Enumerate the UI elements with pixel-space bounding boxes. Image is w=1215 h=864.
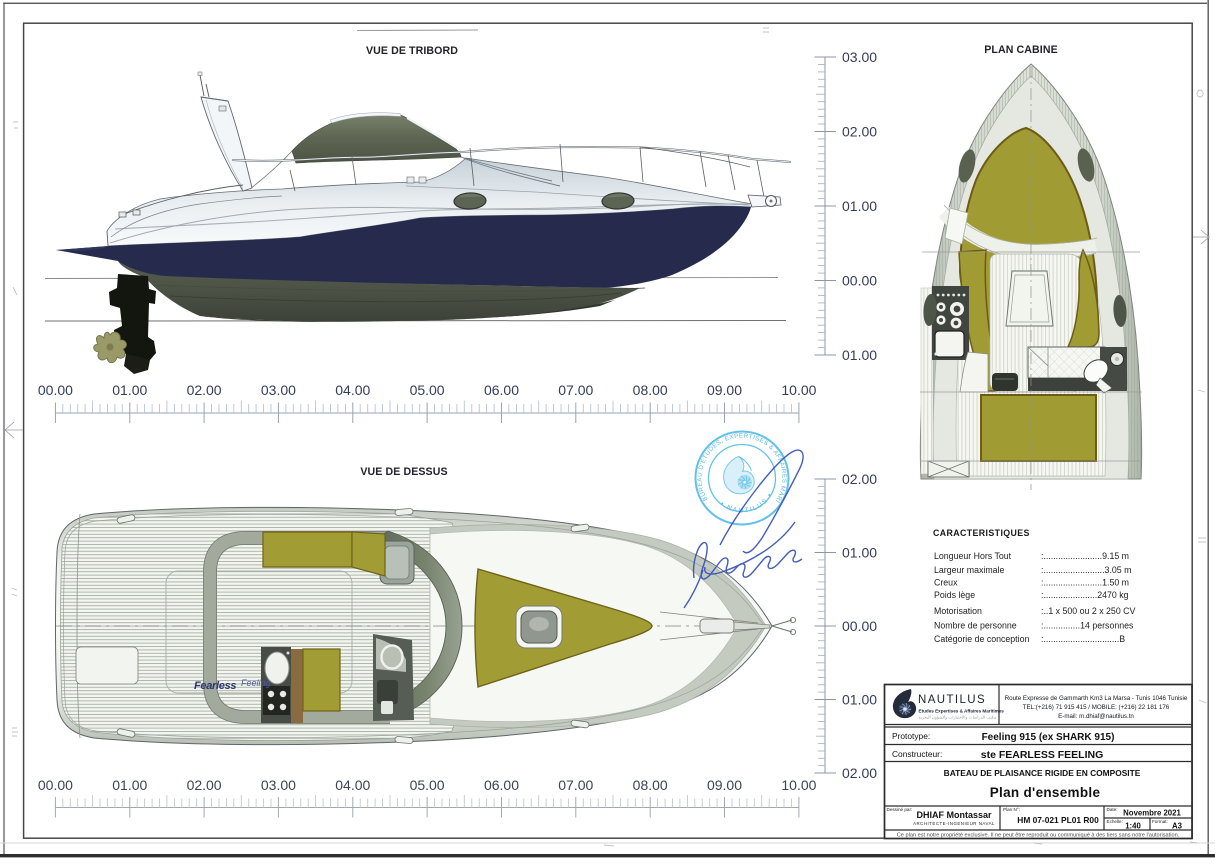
svg-text:00.00: 00.00: [38, 777, 73, 793]
svg-text::.........................3.05: :.........................3.05 m: [1041, 565, 1131, 575]
svg-text::........................9.15: :........................9.15 m: [1041, 551, 1129, 561]
svg-text:01.00: 01.00: [112, 777, 147, 793]
svg-text:Motorisation: Motorisation: [934, 606, 982, 616]
svg-text:1:40: 1:40: [1125, 822, 1141, 831]
svg-text:Route Expresse de Gammarth Km3: Route Expresse de Gammarth Km3 La Marsa …: [1005, 695, 1188, 702]
svg-text:04.00: 04.00: [335, 777, 370, 793]
svg-text:10.00: 10.00: [781, 777, 816, 793]
svg-text:Creux: Creux: [934, 578, 958, 588]
svg-text:Ce plan est notre propriété ex: Ce plan est notre propriété exclusive. I…: [897, 833, 1180, 839]
svg-text:01.00: 01.00: [842, 198, 877, 214]
svg-text::........................1.50: :........................1.50 m: [1041, 578, 1129, 588]
svg-text:Constructeur:: Constructeur:: [892, 749, 942, 759]
svg-text::.............................: :...............................B: [1041, 634, 1125, 644]
svg-text:Prototype:: Prototype:: [892, 731, 930, 741]
svg-text:00.00: 00.00: [38, 382, 73, 398]
svg-text:03.00: 03.00: [261, 382, 296, 398]
svg-text::...............14 personnes: :...............14 personnes: [1041, 621, 1134, 631]
svg-text:Date:: Date:: [1107, 807, 1118, 812]
svg-text:05.00: 05.00: [410, 382, 445, 398]
svg-text:NAUTILUS: NAUTILUS: [918, 694, 986, 706]
svg-text:Fearless: Fearless: [194, 680, 236, 692]
svg-text:09.00: 09.00: [707, 382, 742, 398]
svg-text:00.00: 00.00: [842, 618, 877, 634]
svg-text:DHIAF Montassar: DHIAF Montassar: [916, 810, 992, 820]
svg-text:06.00: 06.00: [484, 382, 519, 398]
svg-text:Longueur Hors Tout: Longueur Hors Tout: [934, 551, 1012, 561]
svg-text:03.00: 03.00: [261, 777, 296, 793]
svg-text:01.00: 01.00: [842, 692, 877, 708]
svg-text:VUE DE TRIBORD: VUE DE TRIBORD: [366, 45, 458, 57]
svg-text:A3: A3: [1172, 822, 1183, 831]
svg-text:08.00: 08.00: [633, 777, 668, 793]
svg-text:10.00: 10.00: [781, 382, 816, 398]
svg-text:06.00: 06.00: [484, 777, 519, 793]
svg-text:00.00: 00.00: [842, 273, 877, 289]
svg-text:01.00: 01.00: [112, 382, 147, 398]
svg-text::..1 x 500 ou 2 x 250 CV: :..1 x 500 ou 2 x 250 CV: [1041, 606, 1136, 616]
svg-text:02.00: 02.00: [842, 124, 877, 140]
svg-text:07.00: 07.00: [558, 382, 593, 398]
svg-text:BATEAU DE PLAISANCE RIGIDE EN: BATEAU DE PLAISANCE RIGIDE EN COMPOSITE: [944, 768, 1141, 778]
svg-text:Poids lège: Poids lège: [934, 590, 975, 600]
svg-text::......................2470 kg: :......................2470 kg: [1041, 590, 1129, 600]
svg-text:Nombre de personne: Nombre de personne: [934, 621, 1017, 631]
svg-text:Largeur maximale: Largeur maximale: [934, 565, 1005, 575]
svg-text:مكتب الدراسات والاختبارات والش: مكتب الدراسات والاختبارات والشؤون البحري…: [919, 715, 997, 720]
svg-text:Echelle:: Echelle:: [1107, 819, 1123, 824]
svg-text:E-mail: m.dhiaf@nautilus.tn: E-mail: m.dhiaf@nautilus.tn: [1058, 713, 1134, 720]
svg-text:ste FEARLESS FEELING: ste FEARLESS FEELING: [981, 749, 1104, 761]
svg-text:07.00: 07.00: [558, 777, 593, 793]
svg-text:Plan N°:: Plan N°:: [1003, 807, 1020, 812]
svg-text:HM 07-021 PL01 R00: HM 07-021 PL01 R00: [1017, 815, 1099, 825]
svg-text:Dessiné par:: Dessiné par:: [887, 807, 913, 812]
svg-text:CARACTERISTIQUES: CARACTERISTIQUES: [933, 528, 1030, 538]
svg-text:Novembre 2021: Novembre 2021: [1123, 809, 1181, 818]
svg-text:04.00: 04.00: [335, 382, 370, 398]
svg-text:VUE DE DESSUS: VUE DE DESSUS: [360, 466, 447, 478]
svg-text:02.00: 02.00: [842, 471, 877, 487]
svg-text:Format:: Format:: [1152, 819, 1168, 824]
svg-text:Catégorie de conception: Catégorie de conception: [934, 634, 1029, 644]
svg-text:09.00: 09.00: [707, 777, 742, 793]
svg-text:08.00: 08.00: [633, 382, 668, 398]
svg-text:Plan d'ensemble: Plan d'ensemble: [990, 785, 1101, 800]
svg-text:Feeling 915 (ex SHARK 915): Feeling 915 (ex SHARK 915): [982, 732, 1115, 743]
svg-text:02.00: 02.00: [187, 382, 222, 398]
svg-text:PLAN CABINE: PLAN CABINE: [984, 44, 1058, 56]
svg-text:Etudes Expertises & Affaires M: Etudes Expertises & Affaires Maritimes: [919, 709, 1005, 714]
svg-text:01.00: 01.00: [842, 347, 877, 363]
svg-text:03.00: 03.00: [842, 49, 877, 65]
svg-text:Feeling: Feeling: [241, 678, 271, 688]
svg-text:02.00: 02.00: [842, 765, 877, 781]
svg-text:TEL:(+216) 71 915 415 / MOBI: TEL:(+216) 71 915 415 / MOBILE: (+216) 2…: [1023, 704, 1170, 711]
svg-text:02.00: 02.00: [187, 777, 222, 793]
svg-text:ARCHITECTE-INGENIEUR NAVAL: ARCHITECTE-INGENIEUR NAVAL: [913, 821, 995, 826]
svg-text:01.00: 01.00: [842, 545, 877, 561]
svg-text:05.00: 05.00: [410, 777, 445, 793]
